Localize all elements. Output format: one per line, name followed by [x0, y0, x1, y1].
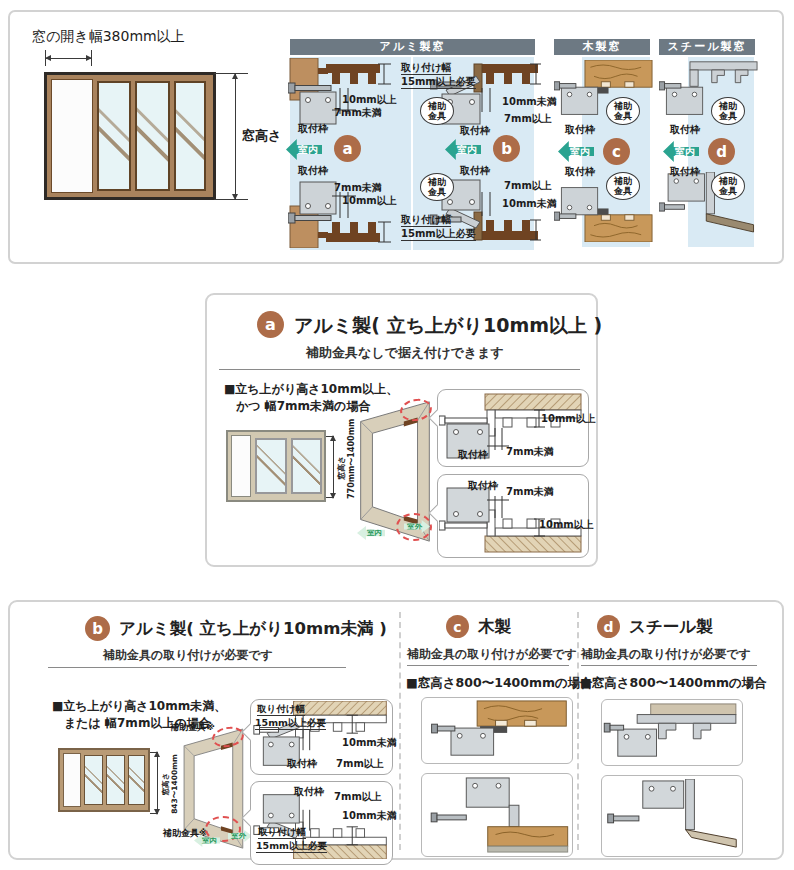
- column-divider: [577, 612, 579, 850]
- dim-label: 7mm以上: [504, 180, 552, 192]
- mount-frame-label: 取付枠: [294, 786, 324, 798]
- dim-label: 7mm未満: [506, 446, 554, 458]
- mount-frame-label: 取付枠: [298, 165, 328, 177]
- window-glass-pane: [255, 438, 287, 494]
- window-glass-pane: [135, 81, 170, 191]
- divider: [48, 667, 346, 668]
- mount-frame-label: 取付枠: [460, 165, 490, 177]
- mount-width-note: 15mm以上必要: [256, 840, 327, 853]
- detail-a-title: アルミ製( 立ち上がり10mm以上 ): [294, 313, 602, 339]
- header-aluminum-window: アルミ製窓: [290, 39, 535, 55]
- dim-label: 10mm未満: [502, 96, 557, 108]
- overview-panel: 窓の開き幅380mm以上 窓高さ アルミ製窓 木製窓 スチール製窓 10mm以上…: [8, 10, 784, 264]
- mount-frame-label: 取付枠: [565, 166, 595, 178]
- divider: [219, 369, 580, 370]
- dim-label: 10mm以上: [342, 195, 397, 207]
- window-glass-pane: [291, 438, 322, 494]
- window-height-dim-arrow: [333, 436, 334, 498]
- detail-a-subtitle: 補助金具なしで据え付けできます: [306, 344, 504, 362]
- aux-bracket-bubble: 補助金具: [711, 172, 745, 200]
- mount-width-note: 15mm以上必要: [401, 228, 476, 241]
- detail-b-window-view: [58, 748, 150, 812]
- dim-label: 10mm未満: [342, 737, 397, 749]
- dim-label: 10mm以上: [539, 519, 594, 531]
- window-glass-pane: [97, 81, 131, 191]
- aux-bracket-bubble: 補助金具: [606, 172, 640, 200]
- aux-bracket-note: 補助金具※: [170, 722, 215, 732]
- badge-c-large: c: [446, 615, 469, 638]
- detail-d-subtitle: 補助金具の取り付けが必要です: [581, 646, 751, 663]
- detail-c-top-cross-section: [423, 699, 571, 761]
- window-height-dim-arrow: [157, 752, 158, 814]
- detail-a-window-view: [226, 430, 326, 502]
- opening-width-dim-arrow: [46, 58, 91, 59]
- mount-width-label: 取り付け幅: [258, 826, 306, 839]
- detail-c-case: ■窓高さ800〜1400mmの場合: [406, 675, 593, 692]
- dim-label: 10mm未満: [342, 810, 397, 822]
- mount-width-label: 取り付け幅: [257, 703, 305, 716]
- badge-b-large: b: [85, 616, 110, 641]
- dim-label: 10mm以上: [342, 94, 397, 106]
- mount-frame-label: 取付枠: [565, 124, 595, 136]
- detail-d-title: スチール製: [629, 616, 713, 638]
- window-height-label: 窓高さ: [242, 129, 281, 144]
- window-open-panel: [231, 435, 251, 497]
- detail-b-title: アルミ製( 立ち上がり10mm未満 ): [119, 618, 387, 640]
- page: 窓の開き幅380mm以上 窓高さ アルミ製窓 木製窓 スチール製窓 10mm以上…: [0, 0, 794, 870]
- section-c-top-cross-section: [554, 60, 654, 128]
- window-front-view: [44, 72, 216, 200]
- window-glass-pane: [174, 81, 206, 191]
- detail-c-subtitle: 補助金具の取り付けが必要です: [407, 646, 577, 663]
- aux-bracket-bubble: 補助金具: [420, 97, 454, 125]
- divider: [581, 665, 757, 666]
- dim-label: 7mm未満: [334, 107, 382, 119]
- aux-bracket-bubble: 補助金具: [420, 173, 454, 201]
- window-open-panel: [63, 753, 81, 807]
- mount-frame-label: 取付枠: [468, 480, 498, 492]
- mount-width-note: 15mm以上必要: [255, 717, 326, 730]
- aux-bracket-bubble: 補助金具: [606, 97, 640, 125]
- window-glass-pane: [106, 755, 125, 805]
- header-wood-window: 木製窓: [554, 39, 650, 55]
- section-d-top-cross-section: [659, 60, 759, 128]
- window-glass-pane: [128, 755, 145, 805]
- badge-a: a: [334, 135, 361, 162]
- dim-label: 10mm未満: [502, 198, 557, 210]
- badge-d: d: [708, 138, 735, 165]
- section-a-bottom-cross-section: [288, 168, 408, 248]
- detail-c-bottom-cross-section: [423, 776, 571, 854]
- badge-d-large: d: [597, 615, 620, 638]
- mount-frame-label: 取付枠: [287, 758, 317, 770]
- detail-c-title: 木製: [478, 616, 511, 638]
- window-height-dim-arrow: [235, 74, 236, 199]
- detail-d-top-cross-section: [603, 702, 741, 762]
- badge-b: b: [493, 135, 520, 162]
- mount-frame-label: 取付枠: [458, 449, 488, 461]
- dim-label: 7mm未満: [506, 486, 554, 498]
- badge-a-large: a: [257, 311, 284, 338]
- mount-width-label: 取り付け幅: [401, 214, 451, 227]
- divider: [407, 665, 569, 666]
- header-steel-window: スチール製窓: [659, 39, 755, 55]
- detail-d-case: ■窓高さ800〜1400mmの場合: [580, 675, 767, 692]
- dim-label: 7mm以上: [336, 758, 384, 770]
- dim-label: 10mm以上: [541, 413, 596, 425]
- mount-width-note: 15mm以上必要: [401, 76, 476, 89]
- mount-frame-label: 取付枠: [298, 123, 328, 135]
- window-open-panel: [51, 79, 93, 193]
- dim-label: 7mm以上: [504, 113, 552, 125]
- opening-width-label: 窓の開き幅380mm以上: [32, 28, 185, 44]
- mount-frame-label: 取付枠: [460, 125, 490, 137]
- mount-width-label: 取り付け幅: [401, 62, 451, 75]
- aux-bracket-bubble: 補助金具: [711, 97, 745, 125]
- mount-frame-label: 取付枠: [670, 124, 700, 136]
- dim-label: 7mm未満: [334, 182, 382, 194]
- dim-label: 7mm以上: [334, 791, 382, 803]
- badge-c: c: [603, 138, 630, 165]
- window-glass-pane: [84, 755, 103, 805]
- detail-d-bottom-cross-section: [603, 779, 741, 853]
- detail-b-subtitle: 補助金具の取り付けが必要です: [103, 647, 273, 664]
- mount-frame-label: 取付枠: [670, 166, 700, 178]
- column-divider: [399, 612, 401, 850]
